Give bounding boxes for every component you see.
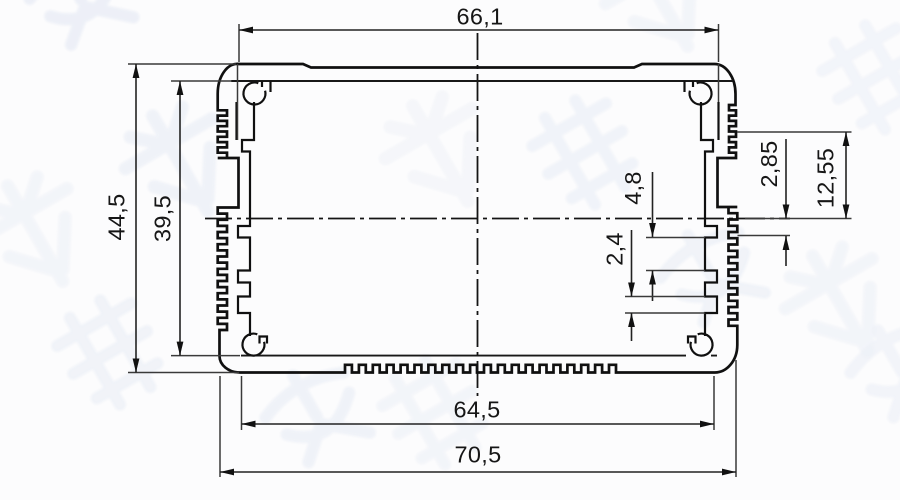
svg-text:12,55: 12,55: [813, 148, 839, 208]
svg-text:44,5: 44,5: [104, 194, 130, 241]
svg-text:2,85: 2,85: [756, 141, 782, 188]
svg-text:39,5: 39,5: [150, 195, 176, 242]
svg-text:70,5: 70,5: [455, 442, 502, 468]
svg-text:66,1: 66,1: [457, 4, 504, 30]
svg-text:4,8: 4,8: [620, 171, 646, 205]
svg-text:64,5: 64,5: [454, 397, 501, 423]
svg-text:2,4: 2,4: [602, 232, 628, 266]
